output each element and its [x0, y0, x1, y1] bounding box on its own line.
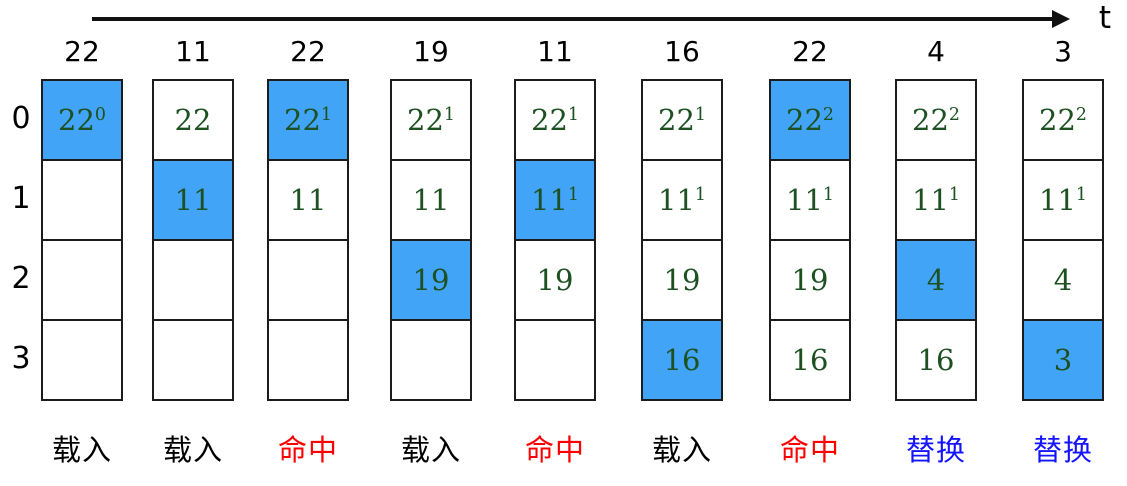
- frame-index-label: 2: [6, 239, 36, 319]
- frame-cell-highlighted: 111: [514, 159, 596, 241]
- reference-count-superscript: 2: [949, 105, 960, 125]
- action-label-load: 载入: [152, 432, 234, 468]
- frame-cell-highlighted: 19: [390, 239, 472, 321]
- frame-stack: 22211143: [1022, 79, 1104, 401]
- frame-stack: 222111416: [895, 79, 977, 401]
- reference-count-superscript: 2: [1076, 105, 1087, 125]
- frame-cell: 111: [895, 159, 977, 241]
- frame-cell: 16: [769, 319, 851, 401]
- frame-cell: 16: [895, 319, 977, 401]
- frame-cell: [41, 239, 123, 321]
- access-page-number: 11: [514, 36, 596, 68]
- action-label-replace: 替换: [895, 432, 977, 468]
- time-step-column: 22220载入: [41, 36, 123, 468]
- action-label-hit: 命中: [514, 432, 596, 468]
- action-label-load: 载入: [390, 432, 472, 468]
- frame-cell: 22: [152, 79, 234, 161]
- frame-cell: [152, 239, 234, 321]
- frame-cell-highlighted: 220: [41, 79, 123, 161]
- frame-cell: 11: [390, 159, 472, 241]
- time-step-column: 112211载入: [152, 36, 234, 468]
- access-page-number: 4: [895, 36, 977, 68]
- time-step-column: 1122111119命中: [514, 36, 596, 468]
- access-page-number: 22: [41, 36, 123, 68]
- reference-count-superscript: 1: [1076, 185, 1087, 205]
- frame-cell: 222: [895, 79, 977, 161]
- time-axis-label: t: [1088, 0, 1122, 36]
- action-label-load: 载入: [41, 432, 123, 468]
- time-axis-line: [92, 17, 1058, 21]
- frame-cell-highlighted: 3: [1022, 319, 1104, 401]
- frame-cell: 111: [641, 159, 723, 241]
- reference-count-superscript: 2: [823, 105, 834, 125]
- action-label-hit: 命中: [769, 432, 851, 468]
- frame-cell: 19: [769, 239, 851, 321]
- frame-cell: 221: [641, 79, 723, 161]
- reference-count-superscript: 1: [695, 105, 706, 125]
- frame-stack: 22111: [267, 79, 349, 401]
- frame-cell: 4: [1022, 239, 1104, 321]
- time-step-column: 322211143替换: [1022, 36, 1104, 468]
- reference-count-superscript: 1: [321, 105, 332, 125]
- frame-cell: [152, 319, 234, 401]
- access-page-number: 19: [390, 36, 472, 68]
- reference-count-superscript: 1: [568, 105, 579, 125]
- action-label-replace: 替换: [1022, 432, 1104, 468]
- access-page-number: 22: [769, 36, 851, 68]
- frame-cell: 19: [641, 239, 723, 321]
- frame-stack: 2211: [152, 79, 234, 401]
- reference-count-superscript: 1: [568, 185, 579, 205]
- action-label-hit: 命中: [267, 432, 349, 468]
- access-page-number: 3: [1022, 36, 1104, 68]
- access-page-number: 11: [152, 36, 234, 68]
- frame-cell: [267, 239, 349, 321]
- frame-cell: 222: [1022, 79, 1104, 161]
- frame-cell-highlighted: 222: [769, 79, 851, 161]
- frame-stack: 22111119: [514, 79, 596, 401]
- frame-stack: 220: [41, 79, 123, 401]
- frame-stack: 2211111916: [641, 79, 723, 401]
- frame-cell: [41, 319, 123, 401]
- frame-cell: [267, 319, 349, 401]
- frame-cell-highlighted: 11: [152, 159, 234, 241]
- reference-count-superscript: 1: [695, 185, 706, 205]
- lru-page-replacement-diagram: t 0123 22220载入112211载入2222111命中192211119…: [0, 0, 1127, 486]
- reference-count-superscript: 1: [949, 185, 960, 205]
- frame-stack: 2211119: [390, 79, 472, 401]
- frame-index-label: 1: [6, 159, 36, 239]
- access-page-number: 16: [641, 36, 723, 68]
- reference-count-superscript: 0: [95, 105, 106, 125]
- frame-cell-highlighted: 16: [641, 319, 723, 401]
- arrow-right-icon: [1052, 10, 1070, 28]
- time-step-column: 4222111416替换: [895, 36, 977, 468]
- time-step-column: 192211119载入: [390, 36, 472, 468]
- frame-cell-highlighted: 4: [895, 239, 977, 321]
- frame-cell: 221: [390, 79, 472, 161]
- frame-index-label: 3: [6, 319, 36, 399]
- frame-cell: 11: [267, 159, 349, 241]
- frame-cell: 221: [514, 79, 596, 161]
- time-step-column: 162211111916载入: [641, 36, 723, 468]
- time-step-column: 222221111916命中: [769, 36, 851, 468]
- frame-cell: 19: [514, 239, 596, 321]
- action-label-load: 载入: [641, 432, 723, 468]
- reference-count-superscript: 1: [444, 105, 455, 125]
- frame-cell: 111: [1022, 159, 1104, 241]
- frame-cell: [514, 319, 596, 401]
- time-step-column: 2222111命中: [267, 36, 349, 468]
- frame-cell: [41, 159, 123, 241]
- frame-cell-highlighted: 221: [267, 79, 349, 161]
- frame-cell: [390, 319, 472, 401]
- reference-count-superscript: 1: [823, 185, 834, 205]
- frame-index-label: 0: [6, 79, 36, 159]
- frame-stack: 2221111916: [769, 79, 851, 401]
- frame-cell: 111: [769, 159, 851, 241]
- access-page-number: 22: [267, 36, 349, 68]
